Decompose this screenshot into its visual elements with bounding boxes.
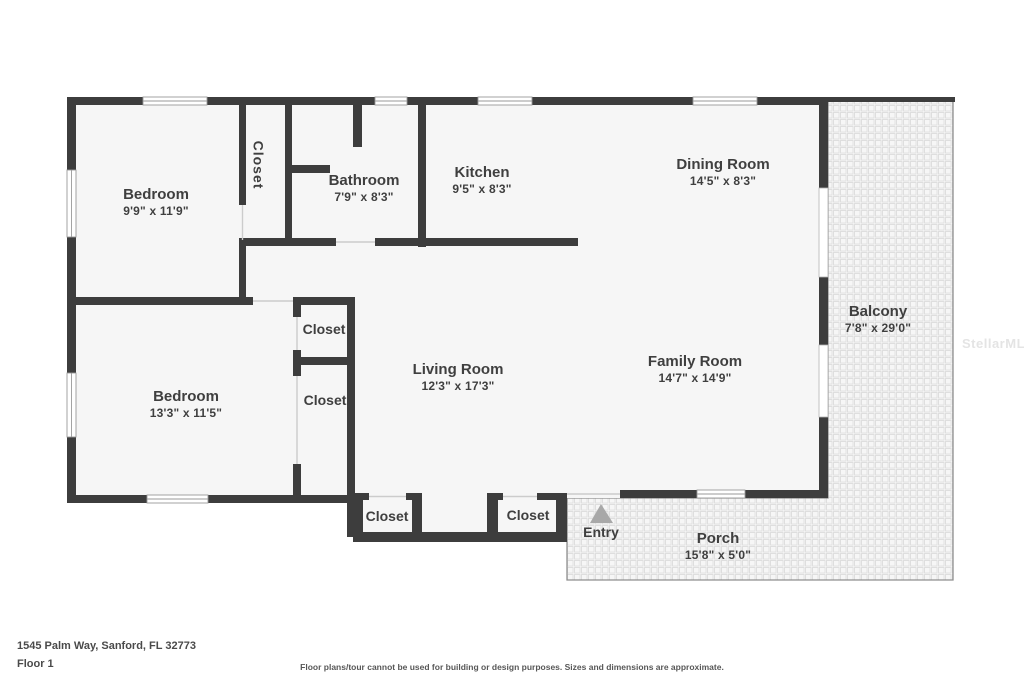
room-name: Closet: [366, 508, 409, 525]
floor-number-label: Floor 1: [17, 658, 54, 670]
disclaimer-text: Floor plans/tour cannot be used for buil…: [300, 662, 724, 672]
floorplan-drawing: [0, 0, 1024, 682]
room-name: Porch: [685, 530, 751, 547]
room-label-closet-top: Closet: [250, 141, 267, 190]
room-label-bedroom-1: Bedroom 9'9" x 11'9": [123, 186, 189, 219]
room-dims: 14'5" x 8'3": [676, 173, 769, 189]
room-label-living-room: Living Room 12'3" x 17'3": [413, 361, 504, 394]
room-label-bathroom: Bathroom 7'9" x 8'3": [329, 172, 400, 205]
room-name: Bedroom: [150, 388, 222, 405]
room-label-entry: Entry: [583, 524, 619, 541]
room-label-family-room: Family Room 14'7" x 14'9": [648, 353, 742, 386]
mls-watermark: StellarMLS: [962, 336, 1024, 351]
room-label-kitchen: Kitchen 9'5" x 8'3": [452, 164, 511, 197]
room-dims: 9'9" x 11'9": [123, 203, 189, 219]
room-name: Closet: [250, 141, 267, 190]
room-name: Entry: [583, 524, 619, 541]
room-label-dining-room: Dining Room 14'5" x 8'3": [676, 156, 769, 189]
room-dims: 15'8" x 5'0": [685, 547, 751, 563]
room-dims: 13'3" x 11'5": [150, 405, 222, 421]
room-name: Bathroom: [329, 172, 400, 189]
room-name: Dining Room: [676, 156, 769, 173]
room-label-balcony: Balcony 7'8" x 29'0": [845, 303, 911, 336]
room-dims: 7'8" x 29'0": [845, 320, 911, 336]
room-dims: 9'5" x 8'3": [452, 181, 511, 197]
room-name: Closet: [304, 392, 347, 409]
room-label-closet-bottom-right: Closet: [507, 507, 550, 524]
room-name: Kitchen: [452, 164, 511, 181]
room-name: Closet: [507, 507, 550, 524]
room-name: Living Room: [413, 361, 504, 378]
room-dims: 12'3" x 17'3": [413, 378, 504, 394]
room-dims: 7'9" x 8'3": [329, 189, 400, 205]
room-name: Balcony: [845, 303, 911, 320]
property-address: 1545 Palm Way, Sanford, FL 32773: [17, 640, 196, 652]
room-label-closet-mid-upper: Closet: [303, 321, 346, 338]
room-name: Family Room: [648, 353, 742, 370]
room-label-closet-mid-lower: Closet: [304, 392, 347, 409]
room-name: Bedroom: [123, 186, 189, 203]
room-dims: 14'7" x 14'9": [648, 370, 742, 386]
room-name: Closet: [303, 321, 346, 338]
room-label-porch: Porch 15'8" x 5'0": [685, 530, 751, 563]
room-label-closet-bottom-left: Closet: [366, 508, 409, 525]
room-label-bedroom-2: Bedroom 13'3" x 11'5": [150, 388, 222, 421]
floorplan-canvas: Bedroom 9'9" x 11'9" Closet Bathroom 7'9…: [0, 0, 1024, 682]
